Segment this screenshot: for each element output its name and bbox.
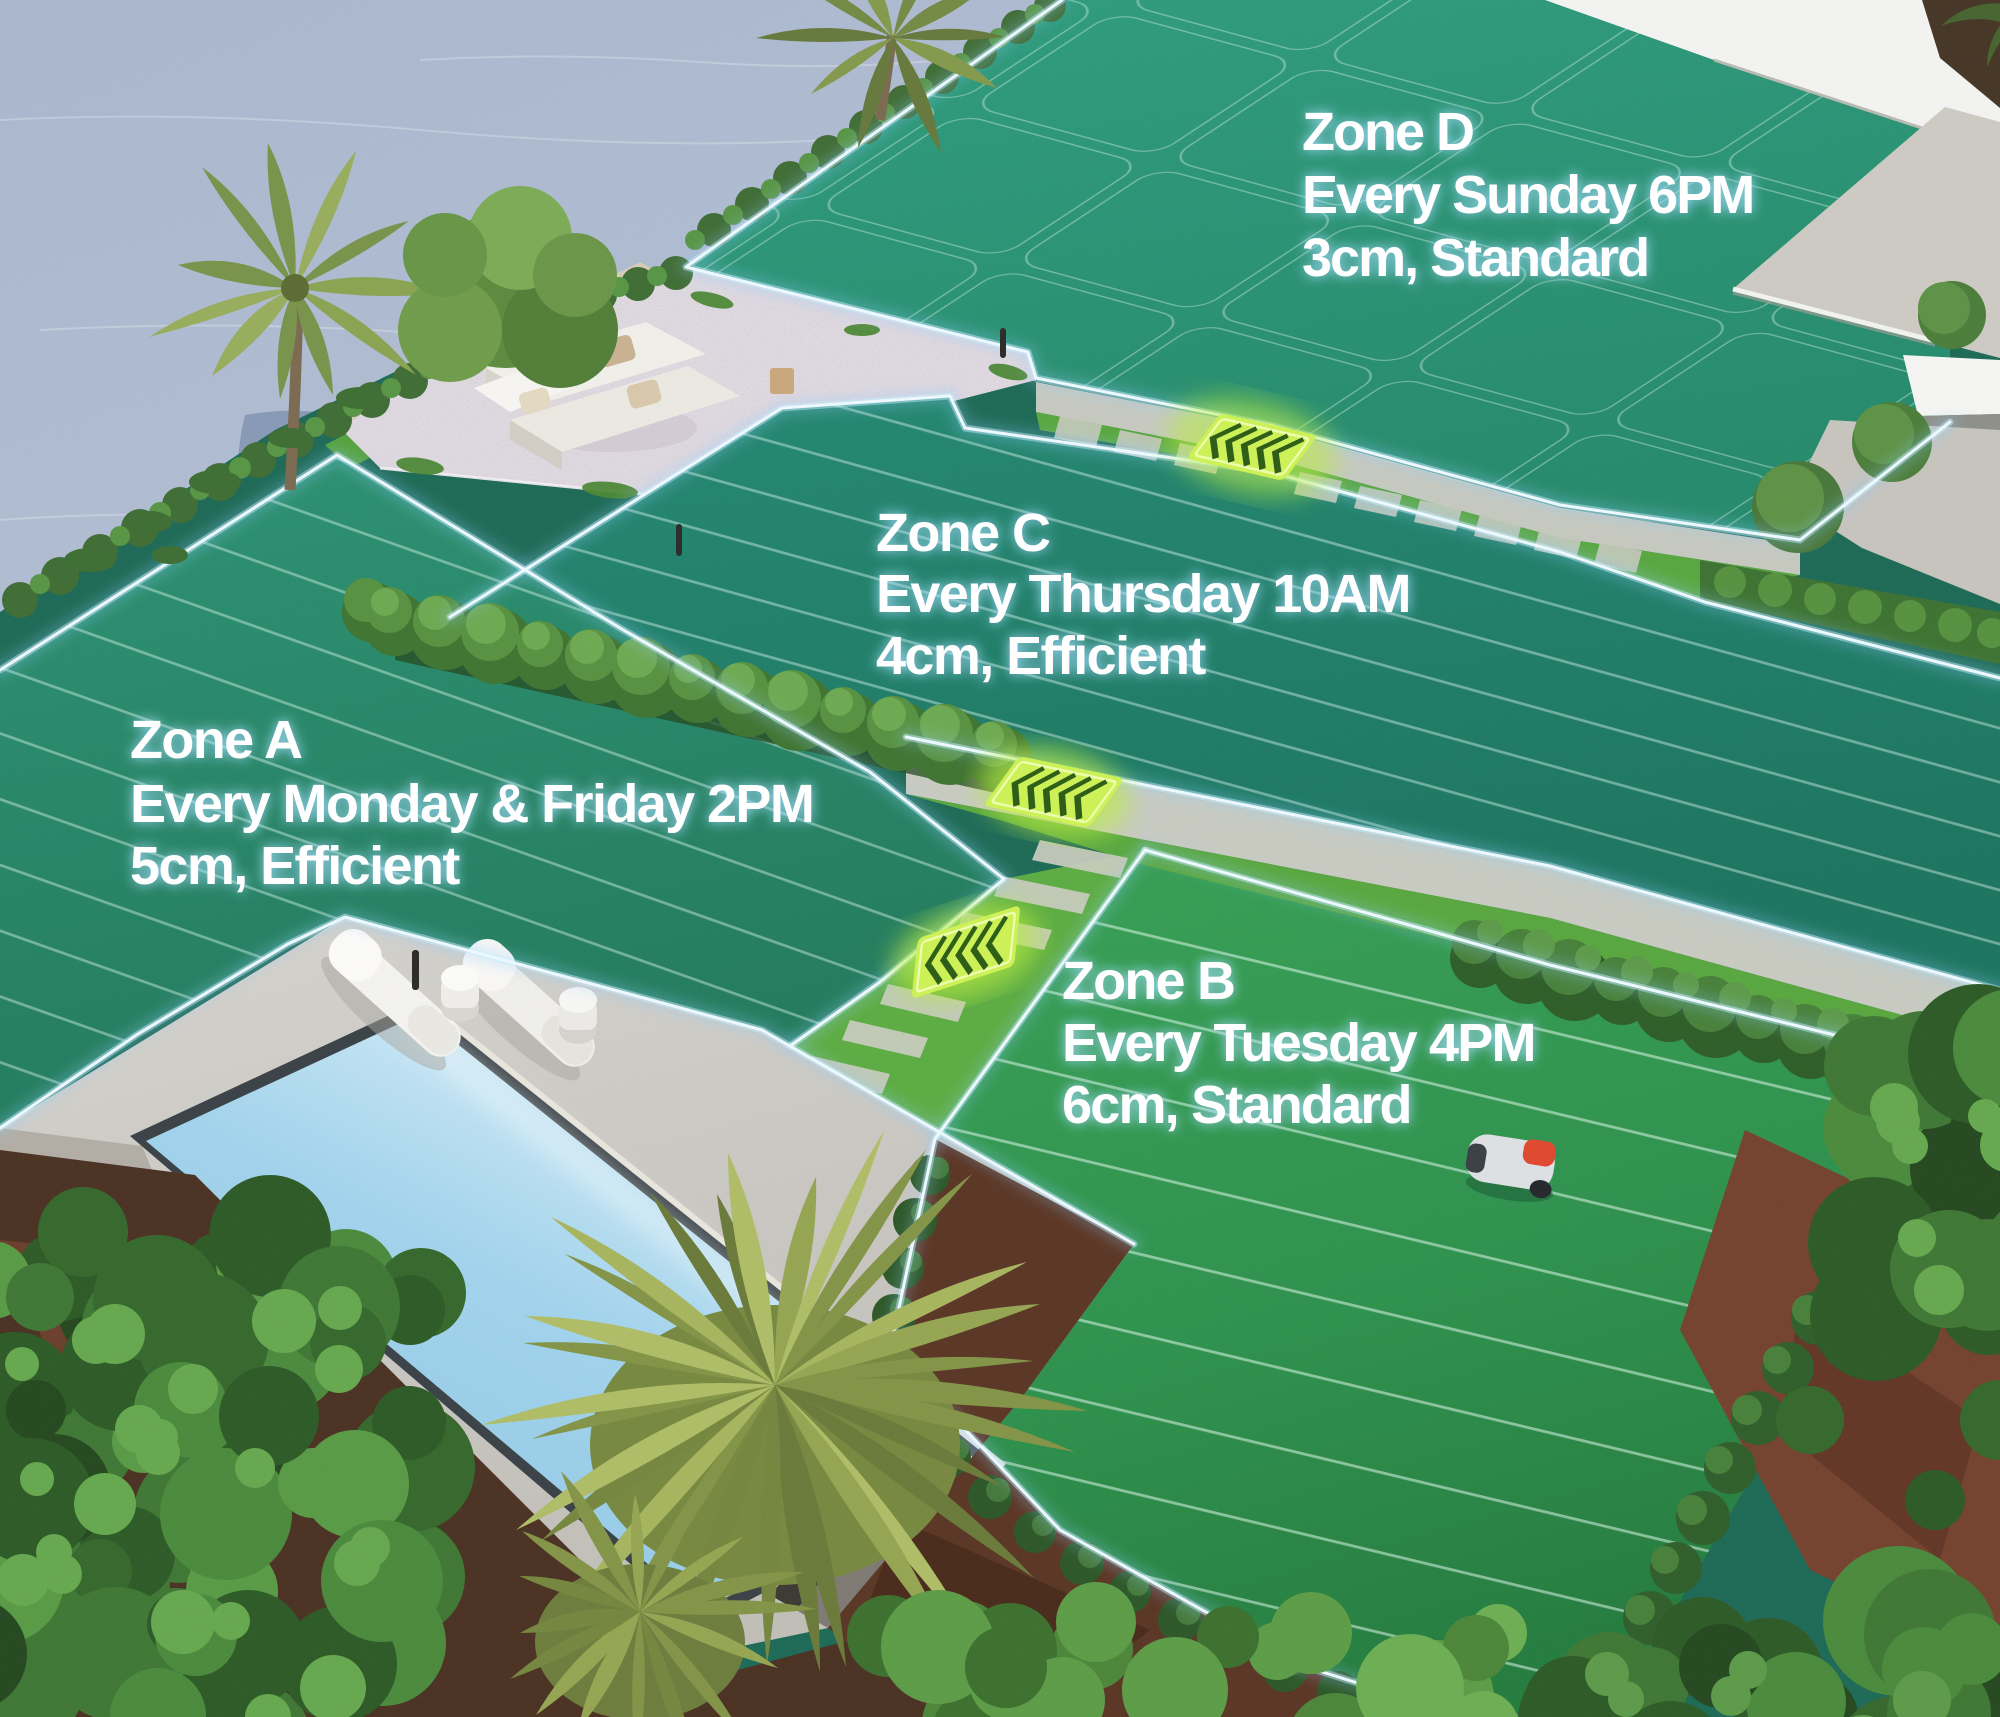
svg-text:Every Sunday 6PM: Every Sunday 6PM [1302,165,1753,225]
svg-text:5cm, Efficient: 5cm, Efficient [130,836,460,896]
svg-text:6cm, Standard: 6cm, Standard [1062,1075,1411,1135]
svg-text:Zone B: Zone B [1062,951,1234,1011]
svg-text:4cm, Efficient: 4cm, Efficient [876,626,1206,686]
svg-text:Every Thursday 10AM: Every Thursday 10AM [876,564,1410,624]
svg-text:Every Monday & Friday 2PM: Every Monday & Friday 2PM [130,774,813,834]
svg-text:Zone C: Zone C [876,503,1050,563]
svg-text:3cm, Standard: 3cm, Standard [1302,228,1648,288]
svg-text:Zone A: Zone A [130,710,302,770]
svg-text:Zone D: Zone D [1302,102,1473,162]
svg-text:Every Tuesday 4PM: Every Tuesday 4PM [1062,1013,1535,1073]
